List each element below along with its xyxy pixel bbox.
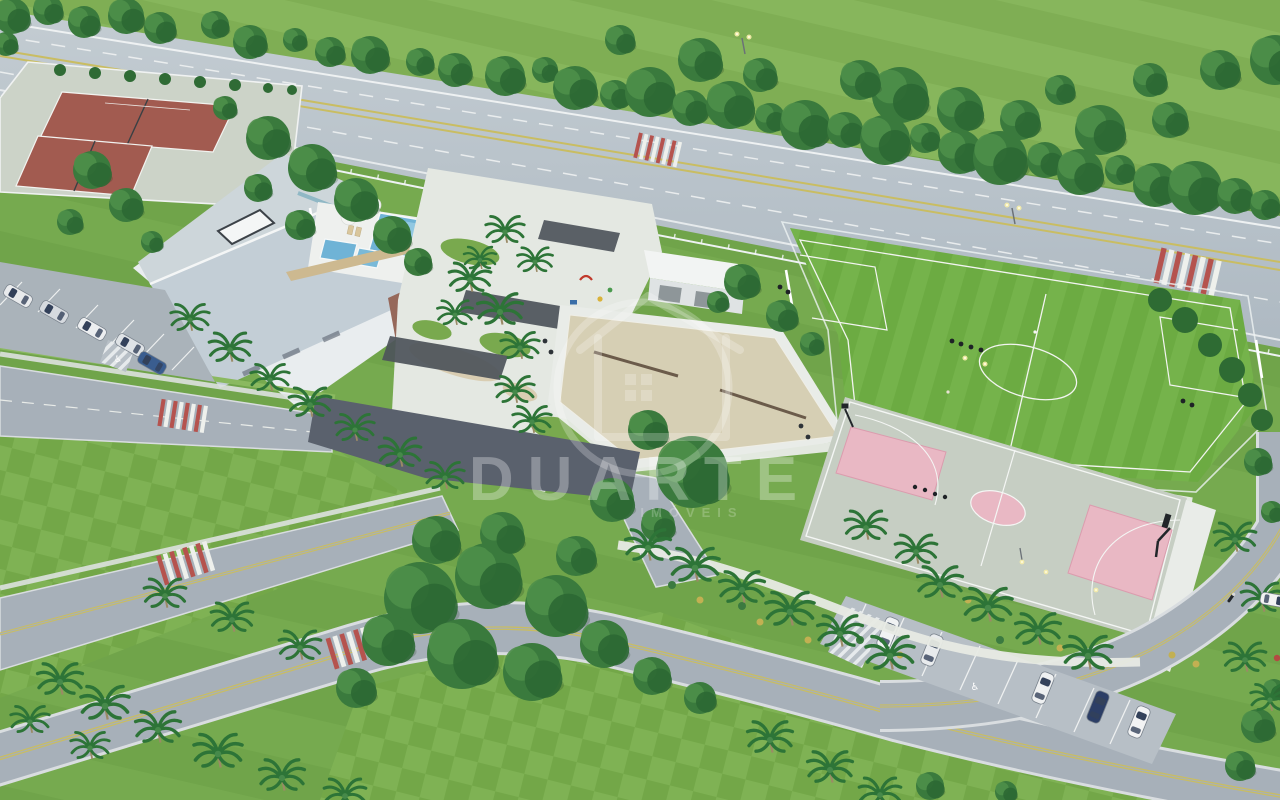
player	[1033, 330, 1036, 333]
handicap-icon: ♿	[114, 354, 122, 364]
aerial-render-page: ♿ ♿	[0, 0, 1280, 800]
handicap-icon: ♿	[971, 682, 980, 693]
aerial-render: ♿ ♿	[0, 0, 1280, 800]
watermark-tagline: IMÓVEIS	[640, 505, 743, 520]
watermark-brand: DUARTE	[469, 445, 811, 514]
car	[1274, 655, 1280, 661]
player	[946, 390, 949, 393]
